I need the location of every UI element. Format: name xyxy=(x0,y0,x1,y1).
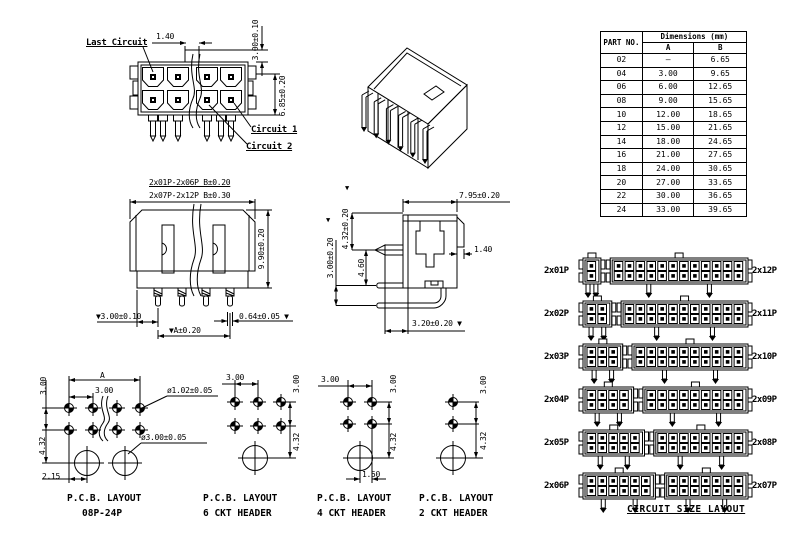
dim-row-pitch: 3.00±0.10 xyxy=(252,20,260,61)
dim-a-cell: 9.00 xyxy=(642,94,694,108)
datum-marker: ▼ xyxy=(326,217,330,224)
table-row: 1012.0018.65 xyxy=(601,108,747,122)
pcb-main-row-pitch: 3.00 xyxy=(40,377,48,395)
circuit-row-label-left: 2x03P xyxy=(544,353,569,362)
pcb-main-row-gap: 4.32 xyxy=(39,437,47,455)
dim-a-cell: 18.00 xyxy=(642,135,694,149)
circuit-row-label-right: 2x08P xyxy=(752,439,777,448)
dim-a-cell: 33.00 xyxy=(642,203,694,217)
pcb6-subtitle: 6 CKT HEADER xyxy=(203,509,272,519)
part-no-cell: 20 xyxy=(601,176,643,190)
dim-tab-width: 1.40 xyxy=(156,33,174,41)
pcb6-title: P.C.B. LAYOUT xyxy=(203,494,277,504)
dim-a-cell: 24.00 xyxy=(642,162,694,176)
datum-marker: ▼ xyxy=(345,185,349,192)
dim-b-cell: 6.65 xyxy=(694,54,747,68)
part-no-cell: 10 xyxy=(601,108,643,122)
circuit-row-label-left: 2x01P xyxy=(544,267,569,276)
pcb-main-col-pitch: 3.00 xyxy=(95,387,113,395)
part-no-cell: 24 xyxy=(601,203,643,217)
dim-pin-depth: 4.60 xyxy=(358,259,366,277)
dim-b-cell: 15.65 xyxy=(694,94,747,108)
part-no-cell: 04 xyxy=(601,67,643,81)
table-row: 2230.0036.65 xyxy=(601,189,747,203)
dim-b-small: 2x01P-2x06P B±0.20 xyxy=(149,179,230,187)
part-no-cell: 18 xyxy=(601,162,643,176)
circuit-row-label-right: 2x12P xyxy=(752,267,777,276)
dim-a-cell: 27.00 xyxy=(642,176,694,190)
dim-b-cell: 36.65 xyxy=(694,189,747,203)
pcb6-col-pitch: 3.00 xyxy=(226,374,244,382)
part-no-header: PART NO. xyxy=(601,32,643,54)
dim-tip-height: 4.32±0.20 xyxy=(342,209,350,250)
dim-pin-offset: ▼3.00±0.10 xyxy=(96,313,141,321)
circuit-row-label-left: 2x06P xyxy=(544,482,569,491)
pcb4-subtitle: 4 CKT HEADER xyxy=(317,509,386,519)
pcb4-col-pitch: 3.00 xyxy=(321,376,339,384)
isometric-view-drawing xyxy=(361,48,467,168)
circuit-size-layout-art xyxy=(579,253,752,513)
dim-a-cell: 12.00 xyxy=(642,108,694,122)
dim-a-cell: — xyxy=(642,54,694,68)
circuit-row-label-right: 2x10P xyxy=(752,353,777,362)
dim-b-large: 2x07P-2x12P B±0.30 xyxy=(149,192,230,200)
pcb4-offset: 1.50 xyxy=(362,471,380,479)
dim-tail-length: 3.20±0.20 ▼ xyxy=(412,320,462,328)
dim-a-cell: 30.00 xyxy=(642,189,694,203)
pcb4-title: P.C.B. LAYOUT xyxy=(317,494,391,504)
part-no-cell: 08 xyxy=(601,94,643,108)
table-row: 02—6.65 xyxy=(601,54,747,68)
dimensions-header: Dimensions (mm) xyxy=(642,32,746,43)
dim-side-width: 7.95±0.20 xyxy=(459,192,500,200)
dim-a-cell: 15.00 xyxy=(642,121,694,135)
pcb2-row-gap: 4.32 xyxy=(480,432,488,450)
part-no-cell: 14 xyxy=(601,135,643,149)
circuit-row-label-right: 2x07P xyxy=(752,482,777,491)
dim-b-cell: 18.65 xyxy=(694,108,747,122)
pcb4-row-pitch: 3.00 xyxy=(390,375,398,393)
dim-b-cell: 9.65 xyxy=(694,67,747,81)
pcb4-row-gap: 4.32 xyxy=(390,433,398,451)
part-no-cell: 06 xyxy=(601,81,643,95)
dim-b-cell: 27.65 xyxy=(694,149,747,163)
dim-b-cell: 24.65 xyxy=(694,135,747,149)
pcb-main-title: P.C.B. LAYOUT xyxy=(67,494,141,504)
pcb2-title: P.C.B. LAYOUT xyxy=(419,494,493,504)
dim-b-cell: 12.65 xyxy=(694,81,747,95)
table-row: 2433.0039.65 xyxy=(601,203,747,217)
dim-a-cell: 3.00 xyxy=(642,67,694,81)
part-no-cell: 02 xyxy=(601,54,643,68)
circuit-row-label-left: 2x05P xyxy=(544,439,569,448)
circuit-size-layout-title: CIRCUIT SIZE LAYOUT xyxy=(627,505,745,515)
part-no-cell: 22 xyxy=(601,189,643,203)
table-row: 1824.0030.65 xyxy=(601,162,747,176)
dim-a-cell: 21.00 xyxy=(642,149,694,163)
col-a-header: A xyxy=(642,43,694,54)
pcb6-row-pitch: 3.00 xyxy=(293,375,301,393)
dim-row-pitch-side: 3.00±0.20 xyxy=(327,238,335,279)
circuit-row-label-left: 2x02P xyxy=(544,310,569,319)
pcb-main-dim-a: A xyxy=(100,372,105,380)
dim-b-cell: 21.65 xyxy=(694,121,747,135)
engineering-drawing-sheet: Last Circuit 1.40 3.00±0.10 6.85±0.20 Ci… xyxy=(0,0,807,540)
table-row: 1215.0021.65 xyxy=(601,121,747,135)
table-row: 1418.0024.65 xyxy=(601,135,747,149)
table-row: 1621.0027.65 xyxy=(601,149,747,163)
dim-b-cell: 33.65 xyxy=(694,176,747,190)
pcb-main-hole-large: ø3.00±0.05 xyxy=(141,434,186,442)
dim-a-span: ▼A±0.20 xyxy=(169,327,201,335)
table-row: 066.0012.65 xyxy=(601,81,747,95)
pcb-main-subtitle: 08P-24P xyxy=(82,509,122,519)
circuit-row-label-left: 2x04P xyxy=(544,396,569,405)
dim-body-height: 6.85±0.20 xyxy=(279,76,287,117)
circuit-row-label-right: 2x09P xyxy=(752,396,777,405)
table-row: 043.009.65 xyxy=(601,67,747,81)
dim-b-cell: 39.65 xyxy=(694,203,747,217)
dim-side-tab: 1.40 xyxy=(474,246,492,254)
pcb6-row-gap: 4.32 xyxy=(293,433,301,451)
dim-pin-width: 0.64±0.05 ▼ xyxy=(239,313,289,321)
pcb-main-offset: 2.15 xyxy=(42,473,60,481)
part-no-cell: 12 xyxy=(601,121,643,135)
circuit-2-label: Circuit 2 xyxy=(246,143,292,152)
circuit-row-label-right: 2x11P xyxy=(752,310,777,319)
table-row: 2027.0033.65 xyxy=(601,176,747,190)
col-b-header: B xyxy=(694,43,747,54)
dim-depth: 9.90±0.20 xyxy=(258,229,266,270)
circuit-1-label: Circuit 1 xyxy=(251,126,297,135)
pcb-main-hole-small: ø1.02±0.05 xyxy=(167,387,212,395)
last-circuit-label: Last Circuit xyxy=(86,39,147,48)
pcb2-row-pitch: 3.00 xyxy=(480,376,488,394)
parts-table: PART NO. Dimensions (mm) A B 02—6.65043.… xyxy=(600,31,747,217)
table-row: 089.0015.65 xyxy=(601,94,747,108)
dim-a-cell: 6.00 xyxy=(642,81,694,95)
part-no-cell: 16 xyxy=(601,149,643,163)
dim-b-cell: 30.65 xyxy=(694,162,747,176)
pcb2-subtitle: 2 CKT HEADER xyxy=(419,509,488,519)
